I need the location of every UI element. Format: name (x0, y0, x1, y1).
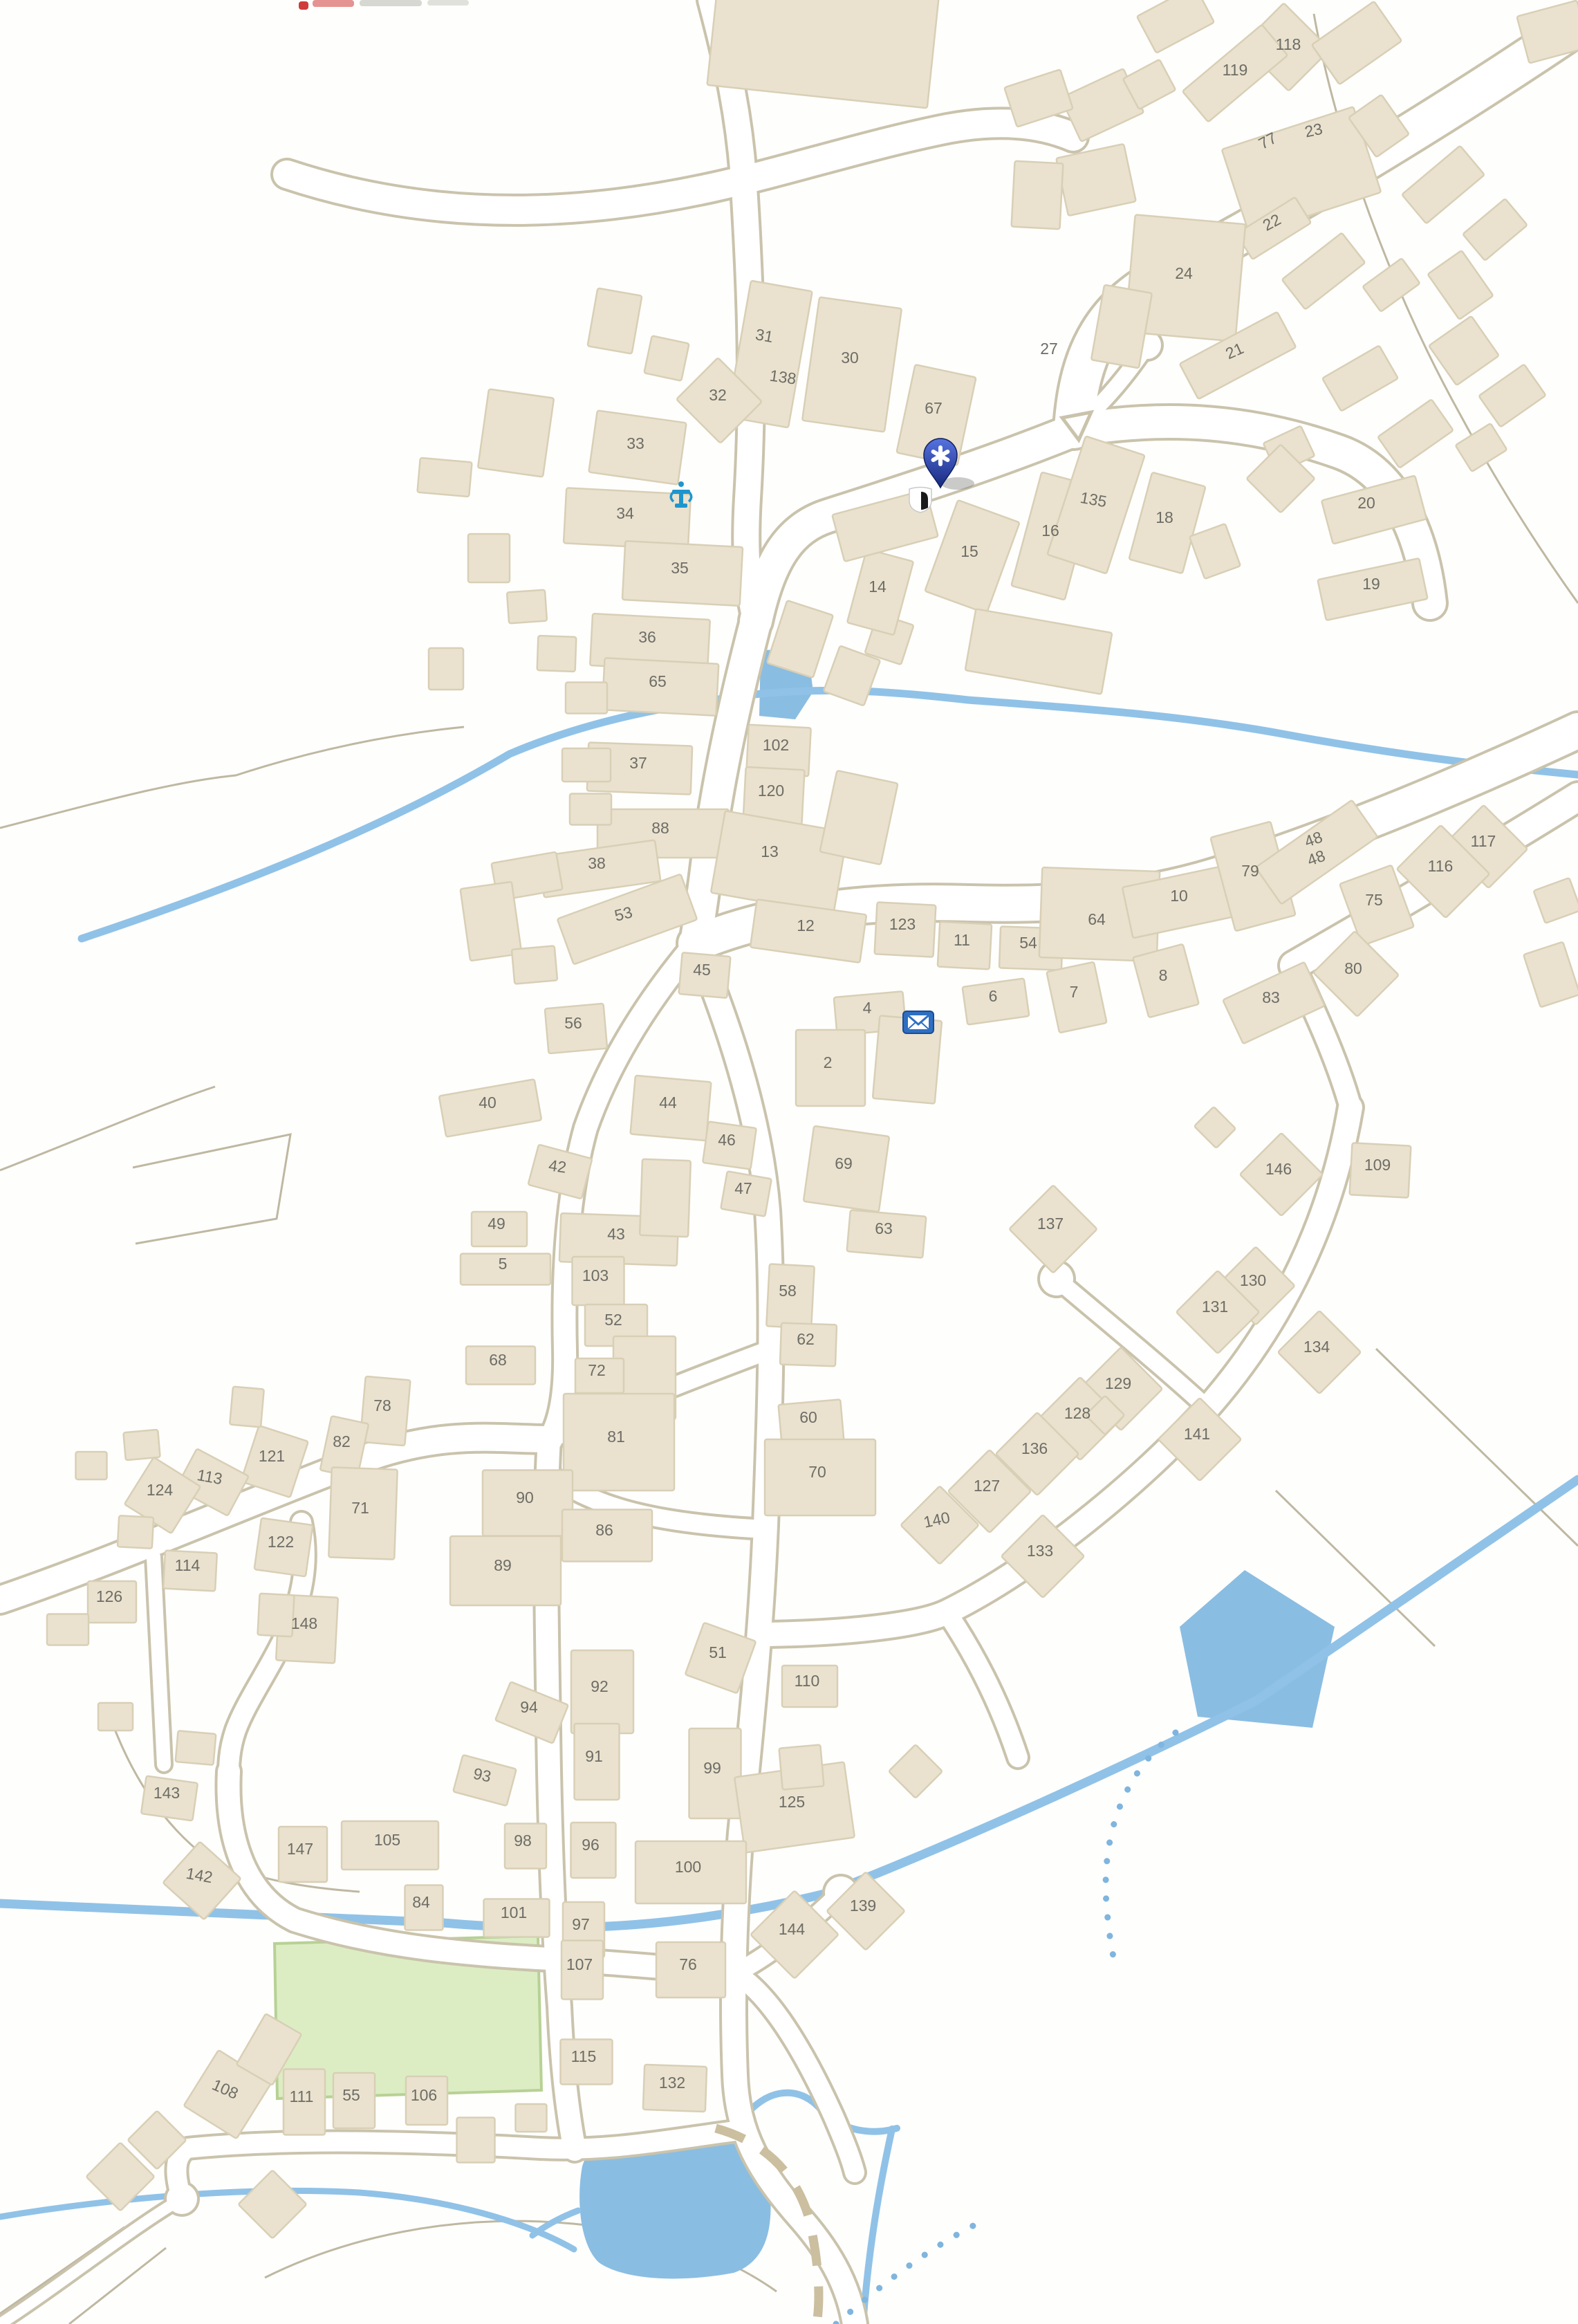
building (76, 1452, 107, 1479)
house-number-label: 44 (659, 1094, 677, 1112)
house-number-label: 137 (1037, 1215, 1064, 1233)
house-number-label: 51 (709, 1643, 727, 1661)
house-number-label: 58 (779, 1282, 797, 1300)
house-number-label: 101 (501, 1903, 527, 1921)
house-number-label: 24 (1175, 264, 1193, 282)
house-number-label: 47 (734, 1179, 752, 1197)
house-number-label: 55 (342, 2086, 360, 2104)
clipped-label-fragment (360, 0, 422, 6)
house-number-label: 115 (571, 2047, 597, 2065)
house-number-label: 118 (1276, 35, 1301, 53)
house-number-label: 111 (290, 2087, 314, 2105)
house-number-label: 144 (779, 1920, 806, 1938)
house-number-label: 14 (869, 578, 887, 596)
building (588, 288, 642, 354)
building (118, 1515, 154, 1549)
building (478, 389, 554, 477)
house-number-label: 92 (591, 1677, 609, 1695)
map-canvas[interactable]: 1191187723222421273130138326733343536651… (0, 0, 1578, 2324)
house-number-label: 121 (259, 1447, 285, 1465)
building (640, 1159, 691, 1237)
house-number-label: 134 (1303, 1338, 1330, 1356)
house-number-label: 86 (595, 1521, 613, 1539)
house-number-label: 100 (675, 1858, 701, 1876)
house-number-label: 97 (572, 1915, 590, 1933)
building (570, 794, 611, 825)
house-number-label: 32 (709, 386, 727, 404)
house-number-label: 68 (489, 1351, 507, 1369)
house-number-label: 130 (1240, 1271, 1266, 1289)
house-number-label: 136 (1021, 1439, 1048, 1457)
house-number-label: 45 (693, 961, 711, 979)
house-number-label: 70 (808, 1463, 826, 1481)
building (468, 534, 510, 582)
house-number-label: 71 (351, 1499, 369, 1517)
house-number-label: 148 (291, 1614, 317, 1632)
house-number-label: 96 (582, 1836, 600, 1854)
house-number-label: 117 (1471, 832, 1496, 850)
house-number-label: 19 (1362, 575, 1380, 593)
building (176, 1731, 216, 1765)
building (779, 1744, 824, 1789)
house-number-label: 43 (607, 1225, 625, 1243)
house-number-label: 12 (797, 916, 815, 934)
building (644, 335, 689, 380)
house-number-label: 81 (607, 1428, 625, 1446)
house-number-label: 78 (373, 1396, 391, 1414)
house-number-label: 31 (754, 325, 774, 346)
building (1012, 161, 1064, 230)
house-number-label: 132 (659, 2074, 685, 2092)
building (457, 2118, 495, 2163)
house-number-label: 2 (824, 1053, 833, 1071)
house-number-label: 93 (472, 1764, 492, 1786)
house-number-label: 42 (548, 1156, 568, 1176)
clipped-label-fragment (313, 0, 354, 7)
house-number-label: 37 (629, 754, 647, 772)
house-number-label: 10 (1170, 887, 1188, 905)
house-number-label: 131 (1202, 1298, 1228, 1316)
shield-door-icon[interactable] (909, 488, 931, 513)
house-number-label: 54 (1019, 934, 1037, 952)
clipped-label-fragment (427, 0, 469, 6)
building (537, 636, 577, 672)
building (516, 2104, 547, 2132)
building (429, 648, 463, 690)
house-number-label: 36 (638, 628, 656, 646)
building (257, 1594, 294, 1637)
house-number-label: 138 (768, 367, 797, 388)
house-number-label: 65 (649, 672, 667, 690)
house-number-label: 103 (582, 1266, 609, 1284)
house-number-label: 15 (960, 542, 978, 560)
house-number-label: 67 (925, 399, 943, 417)
house-number-label: 20 (1357, 494, 1375, 512)
house-number-label: 52 (604, 1311, 622, 1329)
house-number-label: 27 (1040, 340, 1058, 358)
building (512, 946, 557, 984)
house-number-label: 124 (147, 1481, 174, 1499)
house-number-label: 46 (718, 1131, 736, 1149)
building (230, 1387, 264, 1428)
house-number-label: 94 (520, 1698, 538, 1716)
house-number-label: 110 (795, 1672, 820, 1690)
building (562, 748, 611, 782)
house-number-label: 11 (954, 931, 970, 949)
house-number-label: 6 (989, 987, 998, 1005)
house-number-label: 4 (863, 999, 872, 1017)
house-number-label: 123 (889, 915, 916, 933)
house-number-label: 13 (761, 842, 779, 860)
village-map-viewport[interactable]: 1191187723222421273130138326733343536651… (0, 0, 1578, 2324)
house-number-label: 69 (835, 1154, 853, 1172)
clipped-label-fragment (299, 1, 308, 10)
house-number-label: 64 (1088, 910, 1106, 928)
house-number-label: 79 (1241, 862, 1259, 880)
house-number-label: 119 (1223, 61, 1248, 79)
house-number-label: 33 (626, 434, 644, 452)
house-number-label: 49 (488, 1215, 505, 1233)
house-number-label: 90 (516, 1488, 534, 1506)
house-number-label: 35 (671, 559, 689, 577)
house-number-label: 99 (703, 1759, 721, 1777)
house-number-label: 122 (268, 1533, 294, 1551)
building (507, 590, 547, 624)
house-number-label: 63 (875, 1219, 893, 1237)
house-number-label: 56 (564, 1014, 582, 1032)
house-number-label: 147 (287, 1840, 313, 1858)
house-number-label: 80 (1344, 959, 1362, 977)
building (123, 1430, 160, 1460)
culdesac (167, 2184, 197, 2214)
house-number-label: 107 (566, 1955, 593, 1973)
house-number-label: 105 (374, 1831, 400, 1849)
house-number-label: 23 (1303, 120, 1324, 141)
house-number-label: 34 (616, 504, 634, 522)
house-number-label: 30 (841, 349, 859, 367)
house-number-label: 120 (758, 782, 784, 800)
house-number-label: 72 (588, 1361, 606, 1379)
house-number-label: 82 (333, 1432, 351, 1450)
house-number-label: 40 (479, 1094, 496, 1112)
house-number-label: 75 (1365, 891, 1383, 909)
house-number-label: 141 (1184, 1425, 1210, 1443)
house-number-label: 133 (1027, 1542, 1053, 1560)
house-number-label: 60 (799, 1408, 817, 1426)
building (47, 1614, 89, 1645)
house-number-label: 98 (514, 1832, 532, 1850)
house-number-label: 76 (679, 1955, 697, 1973)
post-office-icon[interactable] (903, 1011, 934, 1033)
building (566, 683, 607, 714)
house-number-label: 16 (1041, 522, 1059, 539)
house-number-label: 7 (1070, 983, 1079, 1001)
house-number-label: 102 (763, 736, 789, 754)
house-number-label: 89 (494, 1556, 512, 1574)
house-number-label: 83 (1262, 988, 1280, 1006)
house-number-label: 38 (588, 854, 606, 872)
house-number-label: 62 (797, 1330, 815, 1348)
house-number-label: 125 (779, 1793, 805, 1811)
house-number-label: 146 (1265, 1160, 1292, 1178)
house-number-label: 5 (499, 1255, 508, 1273)
house-number-label: 84 (412, 1893, 430, 1911)
house-number-label: 88 (651, 819, 669, 837)
house-number-label: 114 (175, 1556, 201, 1574)
house-number-label: 116 (1428, 857, 1454, 875)
house-number-label: 143 (154, 1784, 180, 1802)
building (417, 458, 472, 497)
house-number-label: 8 (1159, 966, 1168, 984)
house-number-label: 106 (411, 2086, 437, 2104)
house-number-label: 18 (1155, 508, 1173, 526)
house-number-label: 91 (585, 1747, 603, 1765)
house-number-label: 128 (1064, 1404, 1090, 1422)
building (98, 1703, 133, 1731)
house-number-label: 109 (1364, 1156, 1391, 1174)
house-number-label: 126 (96, 1587, 122, 1605)
house-number-label: 129 (1105, 1374, 1131, 1392)
house-number-label: 127 (974, 1477, 1000, 1495)
house-number-label: 139 (850, 1897, 876, 1915)
